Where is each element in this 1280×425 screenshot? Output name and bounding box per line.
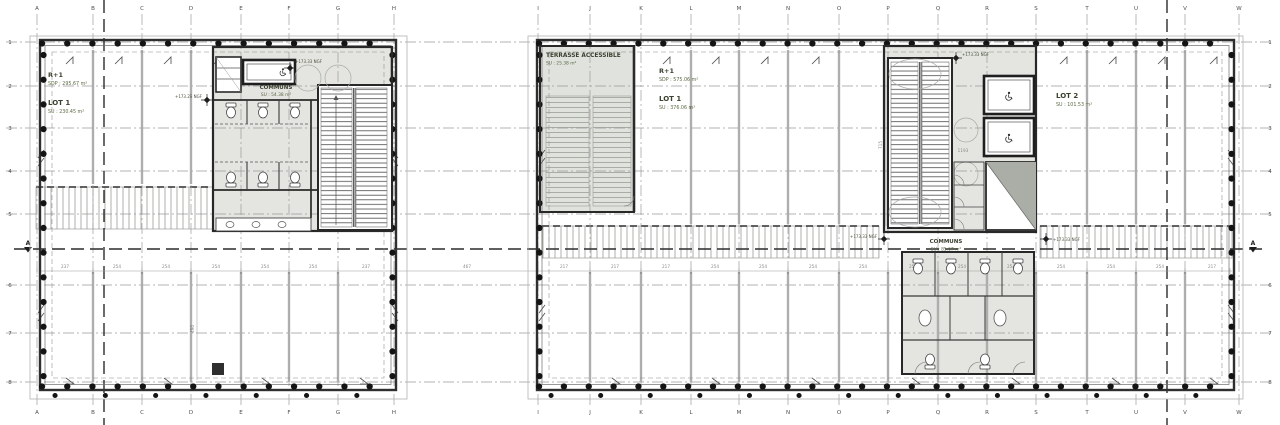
grid-letter: F: [287, 410, 290, 416]
grid-letter: H: [392, 410, 396, 416]
grid-letter: V: [1183, 410, 1187, 416]
toilet-icon: [258, 103, 268, 118]
grid-letters-bottom-left: ABCDEFGH: [35, 410, 396, 416]
grid-number: 4: [8, 169, 12, 175]
bay-dimension: 254: [759, 264, 767, 269]
bay-dimension: 217: [662, 264, 670, 269]
floor-plan-canvas: A A ABCDEFGH ABCDEFGH IJKLMNOPQRSTUVW IJ…: [0, 0, 1280, 425]
grid-letter: N: [786, 410, 790, 416]
lot1-label: LOT 1: [659, 95, 681, 103]
toilet-icon: [1013, 259, 1023, 274]
grid-letter: W: [1236, 6, 1242, 12]
bay-dimension: 254: [212, 264, 220, 269]
vertical-dimension: 1193: [958, 148, 969, 153]
toilet-icon: [258, 172, 268, 187]
toilet-icon: [980, 354, 990, 369]
bay-dimension: 254: [309, 264, 317, 269]
communs-area: SU : 85.67 m²: [931, 247, 962, 253]
grid-letters-bottom-right: IJKLMNOPQRSTUVW: [537, 410, 1242, 416]
grid-number: 1: [8, 40, 12, 46]
bay-dimension: 217: [1208, 264, 1216, 269]
toilet-icon: [290, 172, 300, 187]
bay-dimensions-left: 237254254254254254237: [61, 264, 370, 269]
grid-letter: L: [689, 6, 693, 12]
grid-number: 3: [1268, 126, 1272, 132]
grid-letter: A: [35, 6, 39, 12]
grid-letter: U: [1134, 410, 1138, 416]
grid-letter: P: [886, 410, 890, 416]
floor-label: R+1: [659, 67, 674, 75]
vertical-dimension: 715: [878, 141, 883, 149]
bay-dimension: 254: [809, 264, 817, 269]
toilet-icon: [290, 103, 300, 118]
grid-letter: I: [537, 6, 539, 12]
level-text: +173.29 NGF: [175, 94, 203, 99]
grid-number: 2: [1268, 84, 1272, 90]
grid-letter: N: [786, 6, 790, 12]
communs-label: COMMUNS: [260, 85, 293, 91]
floor-area: SDP : 575.06 m²: [659, 77, 698, 83]
bay-dimension: 254: [1057, 264, 1065, 269]
grid-letter: H: [392, 6, 396, 12]
lot-label: LOT 1: [48, 99, 70, 107]
level-text: +173.33 NGF: [962, 52, 990, 57]
toilet-icon: [913, 259, 923, 274]
bay-dimension: 237: [61, 264, 69, 269]
bay-dimension: 254: [113, 264, 121, 269]
level-text: +173.33 NGF: [295, 59, 323, 64]
bay-dimension: 254: [162, 264, 170, 269]
stair-right-plan: [888, 58, 952, 228]
floor-area: SDP : 295.67 m²: [48, 81, 87, 87]
grid-letter: B: [91, 6, 95, 12]
grid-letter: R: [985, 410, 989, 416]
section-label: A: [1251, 240, 1256, 247]
survey-cross-icon: [201, 94, 213, 106]
grid-number: 6: [1268, 283, 1272, 289]
grid-letter: S: [1034, 410, 1038, 416]
grid-letter: A: [35, 410, 39, 416]
grid-number: 7: [1268, 331, 1272, 337]
terrace-label: TERRASSE ACCESSIBLE: [546, 53, 621, 59]
grid-letter: D: [189, 410, 193, 416]
bay-dimension: 254: [958, 264, 966, 269]
grid-number: 6: [8, 283, 12, 289]
grid-letter: V: [1183, 6, 1187, 12]
grid-letter: C: [140, 6, 144, 12]
floor-plan-drawing: A A ABCDEFGH ABCDEFGH IJKLMNOPQRSTUVW IJ…: [0, 0, 1280, 425]
grid-letter: O: [837, 6, 842, 12]
grid-letter: T: [1084, 410, 1089, 416]
bay-dimension: 217: [611, 264, 619, 269]
level-text: +173.33 NGF: [1053, 237, 1081, 242]
grid-number: 4: [1268, 169, 1272, 175]
toilet-icon: [226, 103, 236, 118]
grid-number: 5: [8, 212, 12, 218]
elevator-left-plan: [243, 60, 295, 84]
grid-letter: J: [588, 6, 591, 12]
toilet-icon: [925, 354, 935, 369]
grid-letter: K: [639, 6, 643, 12]
storage-room: [216, 57, 241, 92]
bay-dimension: 217: [560, 264, 568, 269]
grid-letter: U: [1134, 6, 1138, 12]
grid-numbers-left: 12345678: [8, 40, 12, 386]
grid-letter: P: [886, 6, 890, 12]
level-text: +173.33 NGF: [850, 234, 878, 239]
grid-letter: D: [189, 6, 193, 12]
grid-letters-top-left: ABCDEFGH: [35, 6, 396, 12]
lot-area: SU : 230.45 m²: [48, 109, 84, 115]
lot2-label: LOT 2: [1056, 92, 1078, 100]
bay-dimension: 254: [261, 264, 269, 269]
grid-letters-top-right: IJKLMNOPQRSTUVW: [537, 6, 1242, 12]
grid-number: 7: [8, 331, 12, 337]
grid-number: 8: [1268, 380, 1272, 386]
section-marker-right: A: [1249, 240, 1257, 253]
communs-label: COMMUNS: [930, 239, 963, 245]
grid-letter: O: [837, 410, 842, 416]
grid-number: 2: [8, 84, 12, 90]
floor-label: R+1: [48, 71, 63, 79]
grid-numbers-right: 12345678: [1268, 40, 1272, 386]
grid-letter: M: [737, 410, 742, 416]
grid-number: 3: [8, 126, 12, 132]
grid-letter: T: [1084, 6, 1089, 12]
grid-letter: Q: [936, 6, 941, 12]
sink-counter: [216, 218, 311, 231]
grid-letter: M: [737, 6, 742, 12]
grid-letter: R: [985, 6, 989, 12]
gap-dimension: 467: [463, 264, 471, 269]
grid-letter: C: [140, 410, 144, 416]
grid-letter: K: [639, 410, 643, 416]
grid-letter: L: [689, 410, 693, 416]
grid-number: 1: [1268, 40, 1272, 46]
section-marker-left: A: [24, 240, 32, 253]
bay-dimension: 254: [1107, 264, 1115, 269]
lot2-area: SU : 101.53 m²: [1056, 102, 1092, 108]
grid-letter: F: [287, 6, 290, 12]
bay-dimension: 254: [711, 264, 719, 269]
terrace-area: SU : 25.38 m²: [546, 61, 577, 67]
lot1-area: SU : 376.06 m²: [659, 105, 695, 111]
bay-dimension: 254: [859, 264, 867, 269]
grid-letter: G: [336, 6, 340, 12]
grid-letter: B: [91, 410, 95, 416]
stair-left-plan: [318, 85, 392, 230]
grid-letter: W: [1236, 410, 1242, 416]
toilet-icon: [980, 259, 990, 274]
grid-letter: J: [588, 410, 591, 416]
grid-letter: E: [239, 6, 243, 12]
grid-letter: S: [1034, 6, 1038, 12]
grid-letter: I: [537, 410, 539, 416]
grid-letter: E: [239, 410, 243, 416]
communs-area: SU : 54.38 m²: [261, 92, 292, 98]
elevator-1: [984, 76, 1034, 114]
grid-letter: G: [336, 410, 340, 416]
bay-dimension: 254: [1156, 264, 1164, 269]
grid-number: 8: [8, 380, 12, 386]
grid-number: 5: [1268, 212, 1272, 218]
vertical-dimension: 490: [190, 325, 195, 333]
grid-letter: Q: [936, 410, 941, 416]
bay-dimension: 237: [362, 264, 370, 269]
elevator-2: [984, 118, 1034, 156]
toilet-icon: [946, 259, 956, 274]
toilet-icon: [226, 172, 236, 187]
